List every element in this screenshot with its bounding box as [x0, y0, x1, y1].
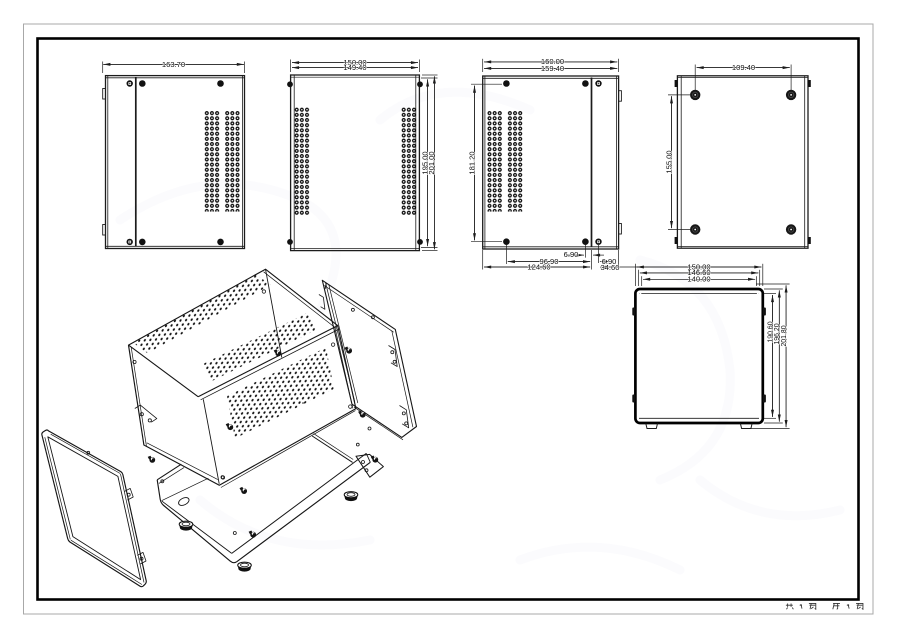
svg-text:201.80: 201.80: [781, 325, 788, 346]
svg-text:149.40: 149.40: [343, 63, 366, 72]
svg-text:159.40: 159.40: [541, 64, 564, 73]
svg-text:6.90: 6.90: [564, 250, 579, 259]
svg-text:124.60: 124.60: [527, 263, 550, 272]
svg-text:34.60: 34.60: [600, 263, 619, 272]
svg-text:109.40: 109.40: [732, 63, 755, 72]
svg-text:181.20: 181.20: [467, 151, 476, 174]
svg-text:140.00: 140.00: [687, 275, 710, 284]
svg-text:155.00: 155.00: [664, 150, 673, 173]
svg-text:201.00: 201.00: [427, 151, 436, 174]
svg-text:163.70: 163.70: [162, 60, 185, 69]
